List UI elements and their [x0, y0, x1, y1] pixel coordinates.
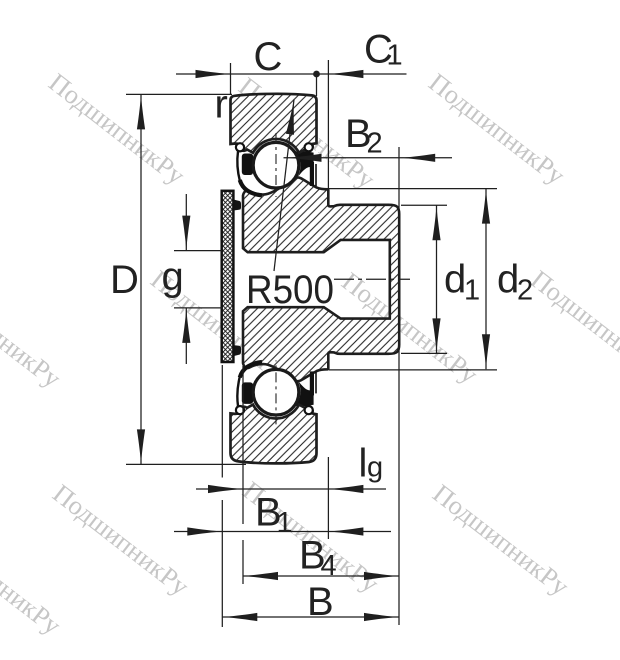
svg-text:g: g [162, 255, 184, 299]
svg-text:1: 1 [277, 507, 293, 539]
svg-text:g: g [367, 452, 383, 484]
svg-text:2: 2 [367, 128, 383, 160]
svg-text:D: D [110, 258, 139, 302]
svg-text:1: 1 [464, 275, 480, 307]
svg-text:B: B [307, 580, 334, 624]
svg-text:r: r [215, 83, 228, 127]
svg-text:d: d [497, 258, 519, 302]
svg-text:R500: R500 [246, 268, 334, 312]
svg-text:4: 4 [321, 550, 337, 582]
svg-text:2: 2 [517, 275, 533, 307]
svg-text:1: 1 [387, 40, 403, 72]
svg-text:d: d [444, 258, 466, 302]
svg-text:C: C [254, 35, 283, 79]
